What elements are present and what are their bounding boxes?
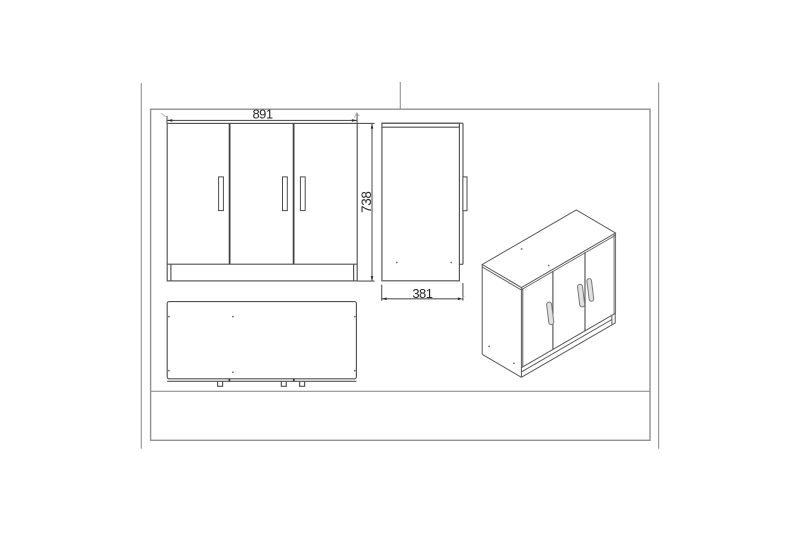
svg-text:381: 381 bbox=[412, 286, 432, 301]
svg-text:738: 738 bbox=[359, 191, 374, 213]
svg-text:891: 891 bbox=[252, 107, 272, 122]
